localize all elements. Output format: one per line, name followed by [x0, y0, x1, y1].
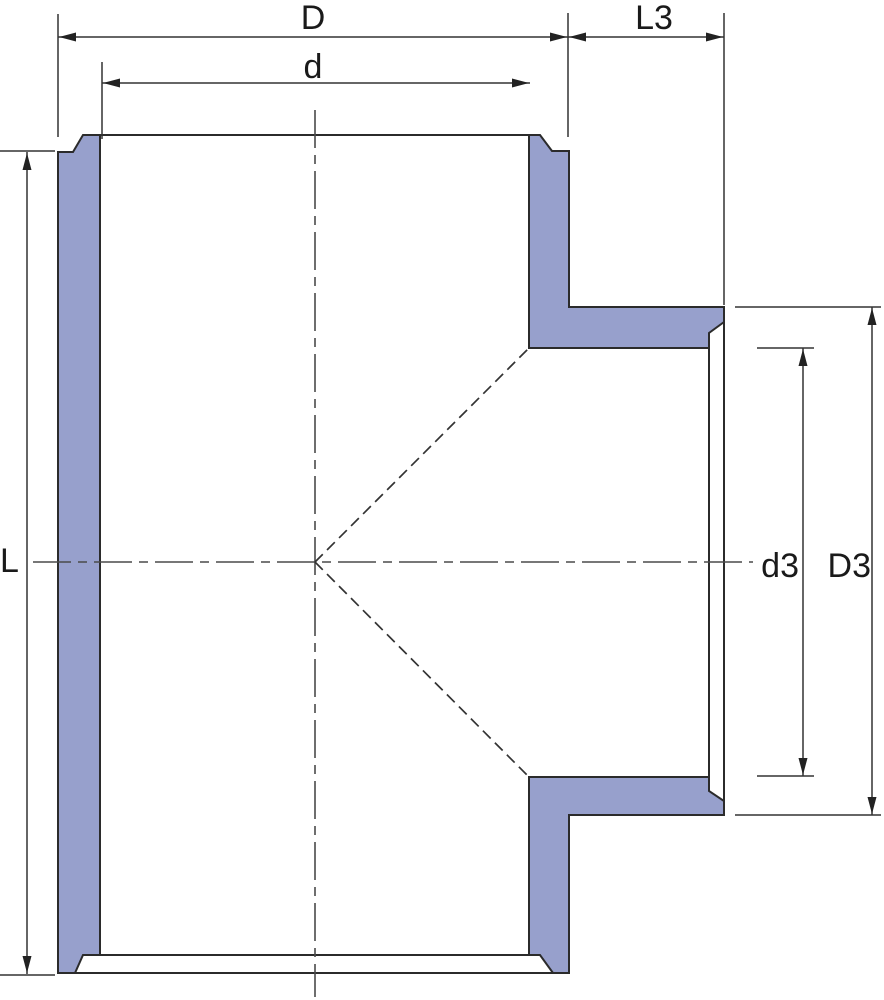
- arrow-d-right: [512, 79, 529, 88]
- socket-transition-upper-dashed: [315, 348, 529, 562]
- arrow-L-bottom: [23, 956, 32, 973]
- arrow-d3-bottom: [799, 758, 808, 775]
- dim-label-L3: L3: [635, 0, 673, 37]
- arrow-L3-left: [569, 33, 586, 42]
- upper-right-wall-and-branch-top-section: [529, 135, 724, 348]
- dim-label-d3: d3: [761, 547, 799, 585]
- arrow-D-left: [59, 33, 76, 42]
- dim-label-d: d: [304, 48, 323, 86]
- arrow-d-left: [103, 79, 120, 88]
- arrow-d3-top: [799, 349, 808, 366]
- socket-transition-lower-dashed: [315, 562, 529, 777]
- left-wall-section: [58, 135, 100, 973]
- lower-right-wall-and-branch-bottom-section: [529, 777, 724, 973]
- dim-label-D3: D3: [828, 547, 871, 585]
- arrow-D3-top: [868, 308, 877, 325]
- arrow-L3-right: [706, 33, 723, 42]
- arrow-D3-bottom: [868, 797, 877, 814]
- tee-fitting-drawing-canvas: DdL3Ld3D3: [0, 0, 884, 1000]
- tee-fitting-cross-section: DdL3Ld3D3: [0, 0, 884, 1000]
- arrow-L-top: [23, 153, 32, 170]
- dim-label-D: D: [301, 0, 326, 37]
- arrow-D-right: [550, 33, 567, 42]
- dim-label-L: L: [0, 542, 19, 580]
